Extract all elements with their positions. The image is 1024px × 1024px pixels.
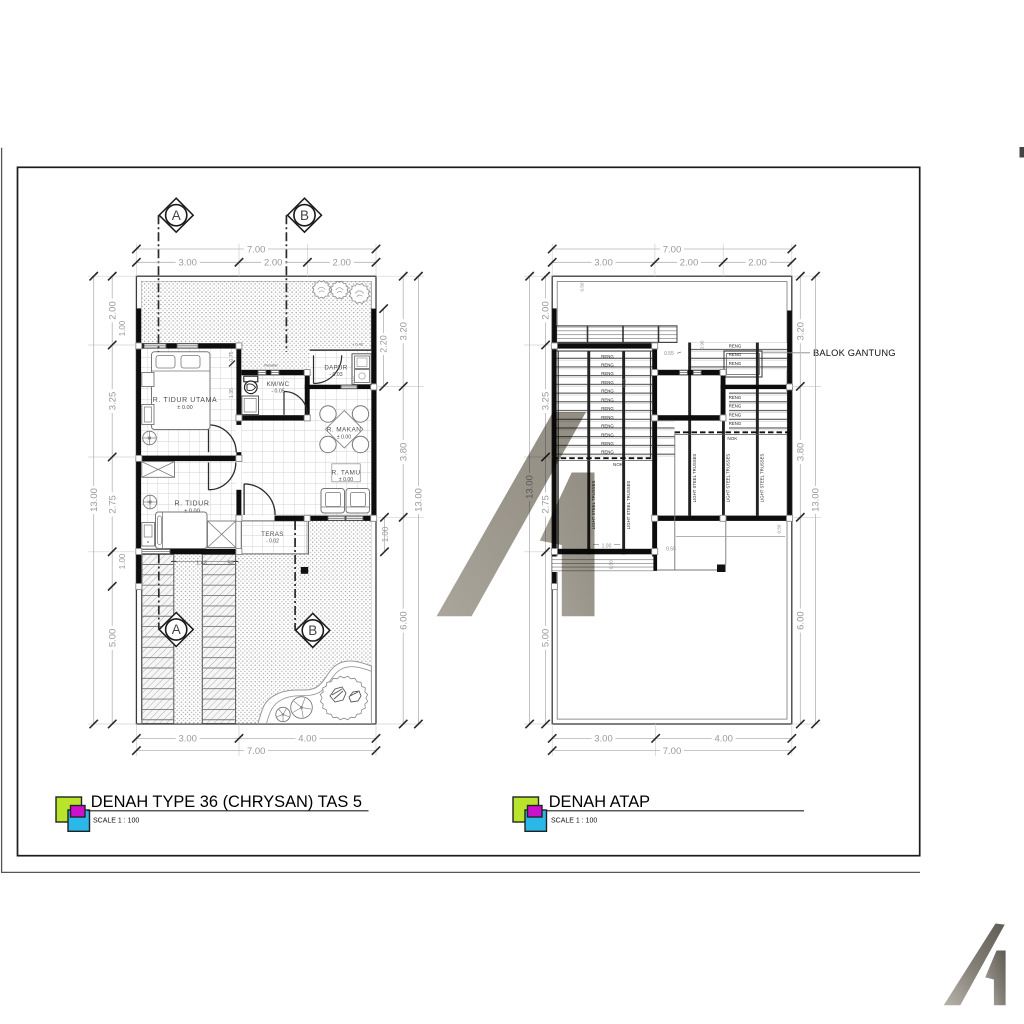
svg-text:1.00: 1.00 (118, 553, 127, 569)
svg-text:RENG: RENG (729, 421, 742, 426)
svg-text:RENG: RENG (729, 352, 742, 357)
svg-text:LIGHT STEEL TRUSSES: LIGHT STEEL TRUSSES (626, 481, 631, 530)
svg-text:RENG: RENG (601, 441, 614, 446)
svg-text:0.50: 0.50 (580, 282, 585, 291)
svg-text:3.20: 3.20 (795, 322, 806, 341)
svg-text:2.75: 2.75 (541, 495, 552, 514)
svg-text:RENG: RENG (601, 389, 614, 394)
svg-text:0.60: 0.60 (351, 375, 356, 384)
svg-text:R. MAKAN: R. MAKAN (327, 427, 362, 434)
svg-text:BALOK GANTUNG: BALOK GANTUNG (813, 348, 896, 358)
svg-text:RENG: RENG (729, 395, 742, 400)
svg-text:- 0.02: - 0.02 (266, 538, 279, 544)
svg-text:3.00: 3.00 (594, 734, 613, 745)
svg-text:RENG: RENG (601, 406, 614, 411)
svg-text:DENAH ATAP: DENAH ATAP (549, 793, 650, 811)
svg-text:7.00: 7.00 (663, 746, 682, 757)
svg-text:NOK: NOK (727, 436, 738, 441)
svg-text:2.00: 2.00 (332, 258, 351, 269)
svg-text:13.00: 13.00 (414, 488, 425, 512)
svg-text:+ 0.40: + 0.40 (352, 342, 364, 347)
svg-text:2.75: 2.75 (107, 495, 118, 514)
svg-text:3.00: 3.00 (178, 258, 197, 269)
svg-text:7.00: 7.00 (247, 746, 266, 757)
svg-text:R. TIDUR UTAMA: R. TIDUR UTAMA (153, 397, 218, 404)
svg-text:0.50: 0.50 (608, 560, 613, 569)
svg-text:0.90: 0.90 (700, 340, 705, 349)
svg-text:DAPUR: DAPUR (324, 364, 347, 371)
svg-text:R. TAMU: R. TAMU (332, 470, 361, 477)
svg-text:A: A (172, 208, 181, 223)
svg-text:2.00: 2.00 (748, 258, 767, 269)
svg-text:KM/WC: KM/WC (267, 381, 290, 388)
svg-text:2.00: 2.00 (680, 258, 699, 269)
svg-text:RENG: RENG (601, 432, 614, 437)
svg-text:- 0.03: - 0.03 (329, 372, 342, 378)
svg-text:RENG: RENG (601, 397, 614, 402)
svg-text:B: B (300, 208, 309, 223)
svg-text:3.00: 3.00 (594, 258, 613, 269)
svg-text:LIGHT STEEL TRUSSES: LIGHT STEEL TRUSSES (692, 454, 697, 503)
svg-text:LIGHT STEEL TRUSSES: LIGHT STEEL TRUSSES (726, 454, 731, 503)
svg-text:3.20: 3.20 (398, 322, 409, 341)
svg-text:1.35: 1.35 (229, 388, 235, 398)
svg-text:A: A (172, 622, 181, 637)
svg-text:2.00: 2.00 (107, 301, 118, 320)
svg-text:5.00: 5.00 (541, 629, 552, 648)
svg-text:B: B (308, 623, 317, 638)
svg-text:3.25: 3.25 (541, 392, 552, 411)
svg-text:2.20: 2.20 (378, 335, 388, 353)
svg-text:- 0.05: - 0.05 (271, 389, 284, 395)
svg-text:0.50: 0.50 (777, 524, 782, 533)
svg-text:DENAH TYPE 36 (CHRYSAN) TAS 5: DENAH TYPE 36 (CHRYSAN) TAS 5 (91, 793, 362, 811)
svg-text:RENG: RENG (601, 424, 614, 429)
svg-text:6.00: 6.00 (398, 611, 409, 630)
svg-text:2.00: 2.00 (541, 301, 552, 320)
svg-text:4.00: 4.00 (714, 734, 733, 745)
svg-text:0.13: 0.13 (622, 378, 627, 387)
svg-text:RENG: RENG (601, 415, 614, 420)
svg-text:SCALE 1 : 100: SCALE 1 : 100 (93, 817, 139, 824)
svg-text:RENG: RENG (601, 450, 614, 455)
svg-text:RENG: RENG (601, 371, 614, 376)
svg-text:RENG: RENG (729, 344, 742, 349)
svg-text:5.00: 5.00 (107, 629, 118, 648)
svg-text:RENG: RENG (729, 404, 742, 409)
svg-text:RENG: RENG (601, 354, 614, 359)
svg-text:13.00: 13.00 (811, 488, 822, 512)
svg-text:NOK: NOK (613, 462, 624, 467)
svg-text:0.75: 0.75 (229, 351, 235, 361)
svg-text:0.55: 0.55 (666, 547, 676, 553)
svg-text:6.00: 6.00 (795, 611, 806, 630)
svg-text:4.00: 4.00 (298, 734, 317, 745)
svg-text:TERAS: TERAS (261, 531, 284, 538)
svg-text:± 0.00: ± 0.00 (184, 509, 200, 515)
svg-text:7.00: 7.00 (247, 244, 266, 255)
svg-text:2.00: 2.00 (264, 258, 283, 269)
svg-text:1.00: 1.00 (381, 526, 390, 542)
svg-text:± 0.00: ± 0.00 (337, 435, 351, 441)
svg-text:RENG: RENG (601, 363, 614, 368)
svg-text:± 0.00: ± 0.00 (177, 405, 193, 411)
svg-text:0.55: 0.55 (664, 351, 674, 357)
svg-text:3.00: 3.00 (178, 734, 197, 745)
svg-text:SCALE 1 : 100: SCALE 1 : 100 (551, 817, 597, 824)
svg-text:± 0.00: ± 0.00 (339, 477, 353, 483)
svg-text:50: 50 (228, 560, 234, 566)
svg-text:3.25: 3.25 (107, 392, 118, 411)
svg-text:RENG: RENG (729, 361, 742, 366)
svg-text:7.00: 7.00 (663, 244, 682, 255)
svg-text:RENG: RENG (729, 412, 742, 417)
svg-text:1.43: 1.43 (196, 560, 207, 566)
svg-text:Rooster: Rooster (264, 362, 278, 367)
svg-text:3.80: 3.80 (795, 443, 806, 462)
svg-text:3.80: 3.80 (398, 443, 409, 462)
svg-text:LIGHT STEEL TRUSSES: LIGHT STEEL TRUSSES (760, 454, 765, 503)
svg-text:RENG: RENG (601, 380, 614, 385)
svg-text:R. TIDUR: R. TIDUR (174, 501, 209, 508)
svg-text:1.00: 1.00 (602, 543, 612, 549)
svg-text:13.00: 13.00 (89, 488, 100, 512)
svg-text:1.00: 1.00 (118, 320, 127, 336)
